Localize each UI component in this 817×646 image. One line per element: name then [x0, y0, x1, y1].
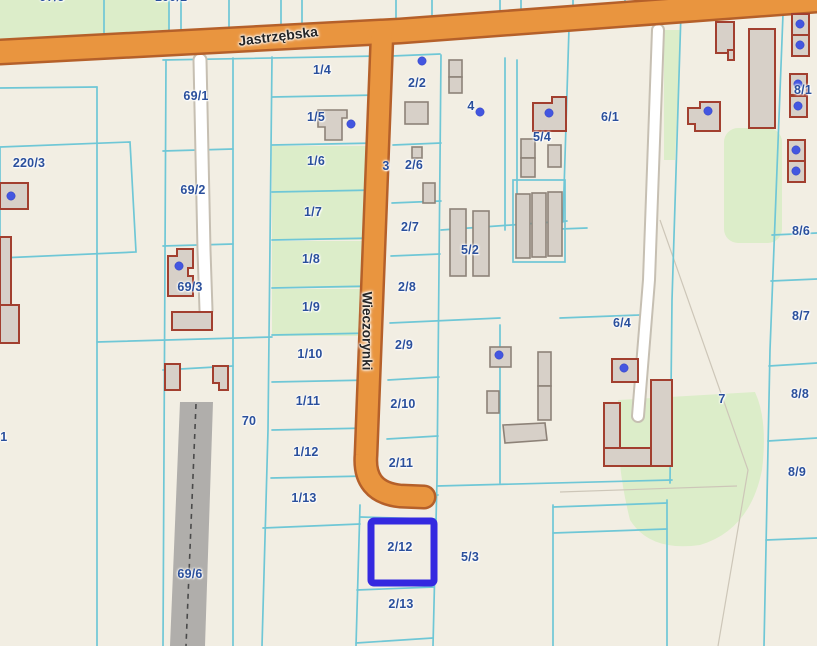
map-canvas[interactable]: Jastrzębska Wieczorynki 97/5100/11/469/1…: [0, 0, 817, 646]
parcel-boundaries: [0, 0, 817, 646]
gray-road-69-6: [170, 402, 213, 646]
selected-parcel-highlight[interactable]: [371, 521, 434, 583]
address-point-dots: [7, 20, 804, 372]
map-graphics: [0, 0, 817, 646]
